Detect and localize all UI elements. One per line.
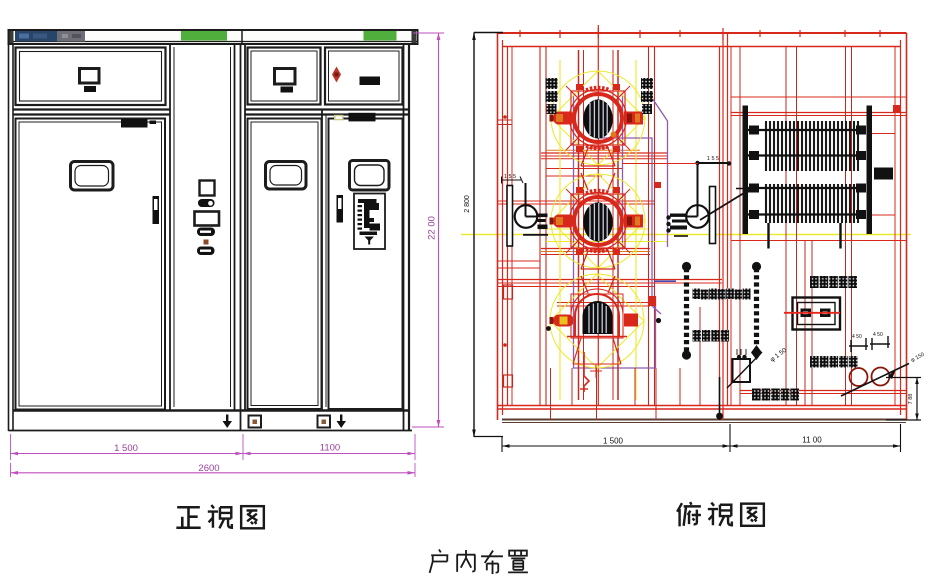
svg-text:1 500: 1 500 bbox=[603, 437, 624, 446]
svg-text:2 800: 2 800 bbox=[464, 195, 471, 213]
svg-text:1 5 5: 1 5 5 bbox=[707, 156, 719, 162]
svg-text:7 88: 7 88 bbox=[908, 394, 914, 405]
svg-text:1 5 5: 1 5 5 bbox=[504, 174, 516, 180]
svg-text:4 50: 4 50 bbox=[852, 334, 862, 340]
svg-text:1 500: 1 500 bbox=[114, 443, 138, 454]
svg-text:22 00: 22 00 bbox=[427, 216, 438, 240]
svg-text:11 00: 11 00 bbox=[802, 436, 822, 445]
svg-text:1100: 1100 bbox=[320, 443, 340, 454]
svg-text:4 50: 4 50 bbox=[873, 332, 883, 338]
svg-text:2600: 2600 bbox=[198, 463, 219, 474]
